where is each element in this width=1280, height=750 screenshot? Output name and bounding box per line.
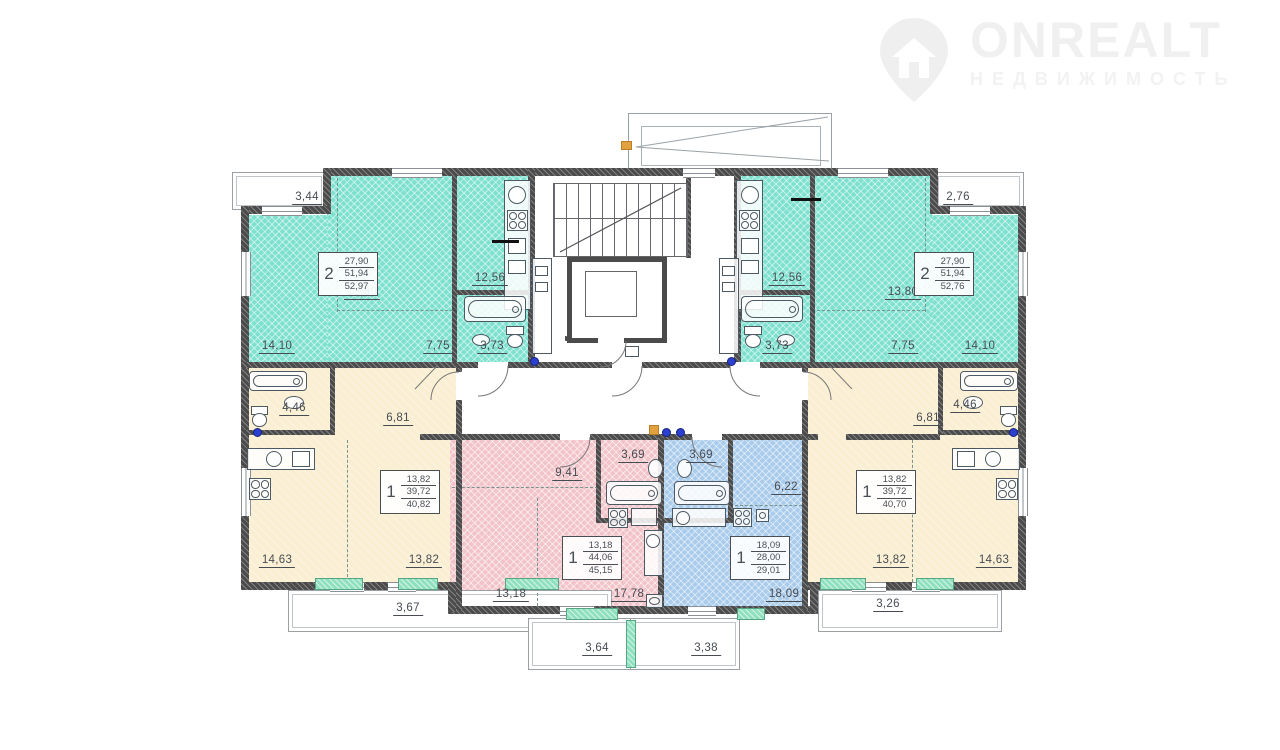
door-opening xyxy=(560,434,590,440)
roof-canopy-outline xyxy=(628,113,832,170)
dimension-label: 18,09 xyxy=(766,588,802,602)
fixture-bathtub xyxy=(960,371,1018,391)
zone-divider-dashed xyxy=(337,310,453,311)
wall-segment xyxy=(456,368,462,610)
plumbing-dot xyxy=(727,357,736,366)
dimension-label: 14,10 xyxy=(259,340,295,354)
elevator-cab xyxy=(585,271,637,317)
window-sill xyxy=(916,578,954,590)
fixture-sink xyxy=(985,451,1001,467)
apartment-living-area: 13,18 xyxy=(583,540,618,552)
dimension-label: 14,63 xyxy=(259,554,295,568)
apartment-area: 44,06 xyxy=(583,552,618,564)
apartment-rooms-count: 1 xyxy=(731,548,751,568)
wall-segment xyxy=(330,368,335,435)
gas-riser xyxy=(649,425,659,435)
dimension-label: 3,69 xyxy=(618,449,648,463)
window-sill xyxy=(626,620,636,668)
apartment-total-area: 52,97 xyxy=(339,281,374,292)
fixture-cabinet xyxy=(741,238,759,254)
window-sill xyxy=(820,578,866,590)
fixture-sink xyxy=(676,511,690,525)
door-opening xyxy=(478,362,508,368)
wall-segment xyxy=(810,176,815,362)
fixture-cabinet xyxy=(741,260,759,274)
fixture-bathtub xyxy=(464,296,526,322)
fixture-stove xyxy=(996,478,1018,500)
gas-riser xyxy=(621,141,632,150)
apartment-total-area: 52,76 xyxy=(935,281,970,292)
apartment-rooms-count: 2 xyxy=(915,264,935,284)
door-opening xyxy=(456,372,462,400)
wall-segment xyxy=(802,368,808,610)
apartment-total-area: 40,82 xyxy=(401,499,436,510)
dimension-label: 13,82 xyxy=(406,554,442,568)
apartment-total-area: 40,70 xyxy=(877,499,912,510)
fixture-cabinet xyxy=(722,266,735,276)
door-opening xyxy=(692,434,722,440)
apartment-info-box: 113,1844,0645,15 xyxy=(562,536,622,580)
window xyxy=(1018,468,1028,516)
apartment-info-box: 113,8239,7240,70 xyxy=(856,470,916,514)
fixture-sink xyxy=(508,186,526,204)
plumbing-dot xyxy=(253,428,262,437)
apartment-area: 51,94 xyxy=(935,268,970,280)
dimension-label: 3,26 xyxy=(873,598,903,612)
balcony xyxy=(528,618,632,670)
dimension-label: 3,73 xyxy=(477,340,507,354)
apartment-rooms-count: 1 xyxy=(857,482,877,502)
apartment-living-area: 13,82 xyxy=(877,474,912,486)
apartment-info-box: 113,8239,7240,82 xyxy=(380,470,440,514)
wall-segment xyxy=(448,582,456,612)
window xyxy=(688,606,716,616)
apartment-area: 39,72 xyxy=(401,486,436,498)
plumbing-dot xyxy=(676,428,685,437)
dimension-label: 3,67 xyxy=(393,602,423,616)
wall-segment xyxy=(452,176,457,362)
fixture-cabinet xyxy=(535,266,548,276)
floor-plan: 3,4413,8012,5614,107,753,732,7612,5613,8… xyxy=(0,0,1280,750)
fixture-stove xyxy=(608,508,628,528)
window xyxy=(1018,252,1028,296)
fixture-bathtub xyxy=(606,481,662,505)
apartment-rooms-count: 2 xyxy=(319,264,339,284)
floorplan-canvas: ONREALT НЕДВИЖИМОСТЬ xyxy=(0,0,1280,750)
dimension-label: 13,18 xyxy=(493,588,529,602)
window-sill xyxy=(398,578,438,590)
window xyxy=(392,168,442,178)
apartment-info-box: 227,9051,9452,76 xyxy=(914,252,974,296)
section-mark xyxy=(791,198,821,201)
fixture-sink xyxy=(741,186,759,204)
fixture-stove xyxy=(733,508,752,527)
plumbing-dot xyxy=(530,357,539,366)
dimension-label: 3,69 xyxy=(686,449,716,463)
fixture-bathtub xyxy=(674,481,730,505)
fixture-cabinet xyxy=(292,451,310,467)
wall-segment xyxy=(420,434,818,440)
fixture-bathtub xyxy=(249,371,307,391)
dimension-label: 6,81 xyxy=(383,412,413,426)
dimension-label: 6,81 xyxy=(913,412,943,426)
plumbing-dot xyxy=(662,428,671,437)
fixture-toilet xyxy=(506,326,522,346)
dimension-label: 7,75 xyxy=(888,340,918,354)
dimension-label: 2,76 xyxy=(943,191,973,205)
dimension-label: 14,63 xyxy=(976,554,1012,568)
window xyxy=(241,252,251,296)
dimension-label: 12,56 xyxy=(769,272,805,286)
apartment-info-box: 227,9051,9452,97 xyxy=(318,252,378,296)
staircase xyxy=(553,183,688,257)
apartment-living-area: 13,82 xyxy=(401,474,436,486)
fixture-cabinet xyxy=(625,346,639,357)
wall-segment xyxy=(846,434,940,440)
fixture-appliance xyxy=(646,594,663,608)
window-sill xyxy=(315,578,363,590)
fixture-sink xyxy=(266,451,282,467)
fixture-toilet xyxy=(1000,406,1015,425)
fixture-stove xyxy=(739,210,760,231)
balcony xyxy=(818,590,1002,632)
apartment-area: 39,72 xyxy=(877,486,912,498)
fixture-cabinet xyxy=(957,451,975,467)
apartment-total-area: 29,01 xyxy=(751,565,786,576)
window xyxy=(262,206,302,216)
wall-segment xyxy=(810,582,818,612)
apartment-rooms-count: 1 xyxy=(563,548,583,568)
door-opening xyxy=(802,372,808,400)
window xyxy=(950,206,990,216)
zone-divider-dashed xyxy=(347,440,348,582)
window-sill xyxy=(737,608,765,620)
apartment-info-box: 118,0928,0029,01 xyxy=(730,536,790,580)
apartment-rooms-count: 1 xyxy=(381,482,401,502)
apartment-living-area: 18,09 xyxy=(751,540,786,552)
fixture-toilet xyxy=(744,326,760,346)
apartment-living-area: 27,90 xyxy=(935,256,970,268)
dimension-label: 4,46 xyxy=(950,399,980,413)
dimension-label: 3,64 xyxy=(582,642,612,656)
zone-divider-dashed xyxy=(452,487,598,488)
apartment-living-area: 27,90 xyxy=(339,256,374,268)
fixture-stove xyxy=(249,478,271,500)
plumbing-dot xyxy=(1009,428,1018,437)
zone-divider-dashed xyxy=(735,505,807,506)
dimension-label: 3,44 xyxy=(292,191,322,205)
fixture-appliance xyxy=(756,509,769,522)
dimension-label: 12,56 xyxy=(472,272,508,286)
fixture-cabinet xyxy=(631,508,657,526)
fixture-sink xyxy=(648,459,663,478)
fixture-bathtub xyxy=(741,296,803,322)
apartment-area: 28,00 xyxy=(751,552,786,564)
wall-segment xyxy=(596,440,601,522)
fixture-cabinet xyxy=(535,282,548,292)
fixture-cabinet xyxy=(508,260,526,274)
dimension-label: 9,41 xyxy=(552,467,582,481)
window-sill xyxy=(566,608,618,620)
section-mark xyxy=(492,240,519,243)
balcony xyxy=(630,618,740,670)
zone-divider-dashed xyxy=(812,310,925,311)
dimension-label: 3,38 xyxy=(691,642,721,656)
dimension-label: 17,78 xyxy=(611,588,647,602)
apartment-total-area: 45,15 xyxy=(583,565,618,576)
dimension-label: 13,82 xyxy=(873,554,909,568)
fixture-cabinet xyxy=(722,282,735,292)
window xyxy=(838,168,888,178)
door-opening xyxy=(612,362,642,368)
window xyxy=(683,168,715,178)
fixture-sink xyxy=(646,534,660,548)
dimension-label: 7,75 xyxy=(423,340,453,354)
fixture-stove xyxy=(507,210,528,231)
fixture-toilet xyxy=(251,406,266,425)
dimension-label: 6,22 xyxy=(771,481,801,495)
dimension-label: 3,73 xyxy=(762,340,792,354)
dimension-label: 4,46 xyxy=(279,402,309,416)
elevator-shaft xyxy=(567,257,667,343)
dimension-label: 14,10 xyxy=(962,340,998,354)
apartment-area: 51,94 xyxy=(339,268,374,280)
